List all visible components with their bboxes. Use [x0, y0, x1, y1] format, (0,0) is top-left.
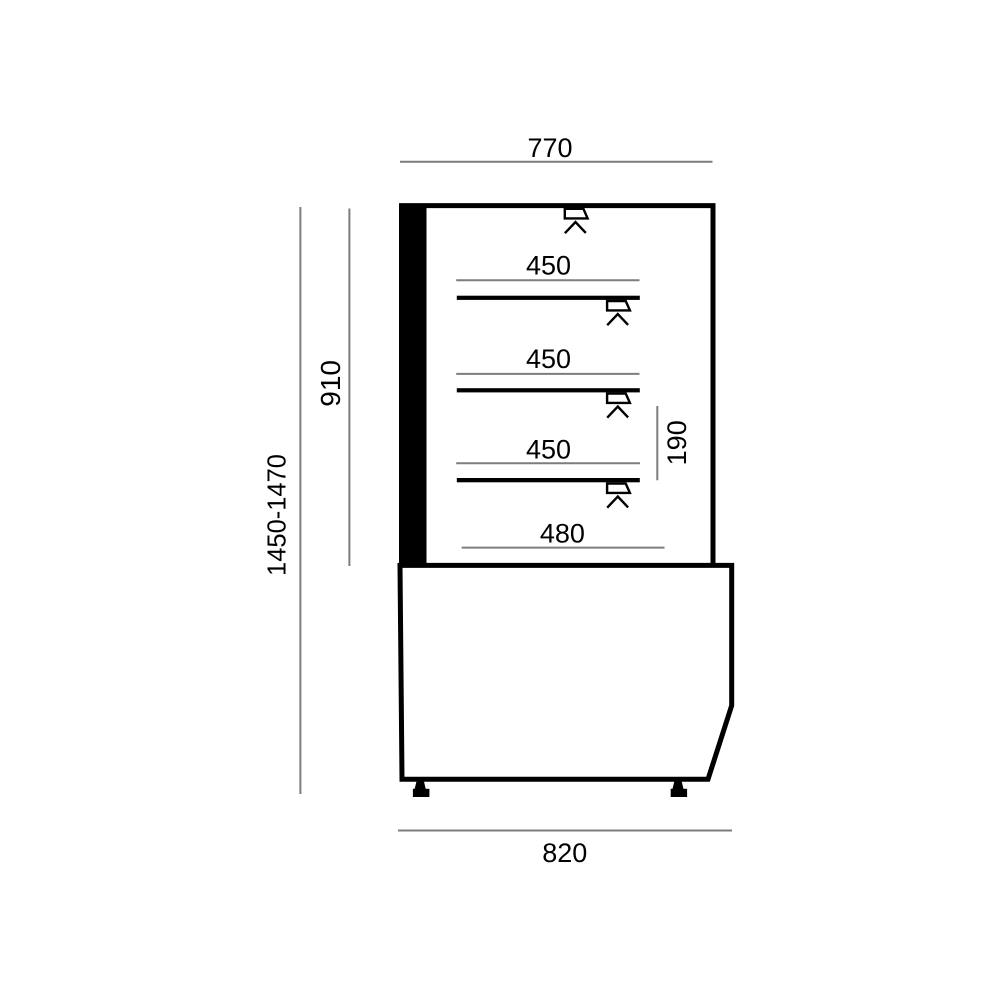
- svg-text:480: 480: [540, 519, 585, 549]
- svg-text:770: 770: [527, 133, 572, 163]
- svg-text:910: 910: [315, 360, 346, 407]
- svg-text:190: 190: [662, 420, 692, 465]
- svg-text:1450-1470: 1450-1470: [264, 454, 292, 576]
- svg-text:450: 450: [526, 250, 571, 280]
- svg-text:820: 820: [542, 838, 587, 868]
- svg-text:450: 450: [526, 434, 571, 464]
- svg-text:450: 450: [526, 344, 571, 374]
